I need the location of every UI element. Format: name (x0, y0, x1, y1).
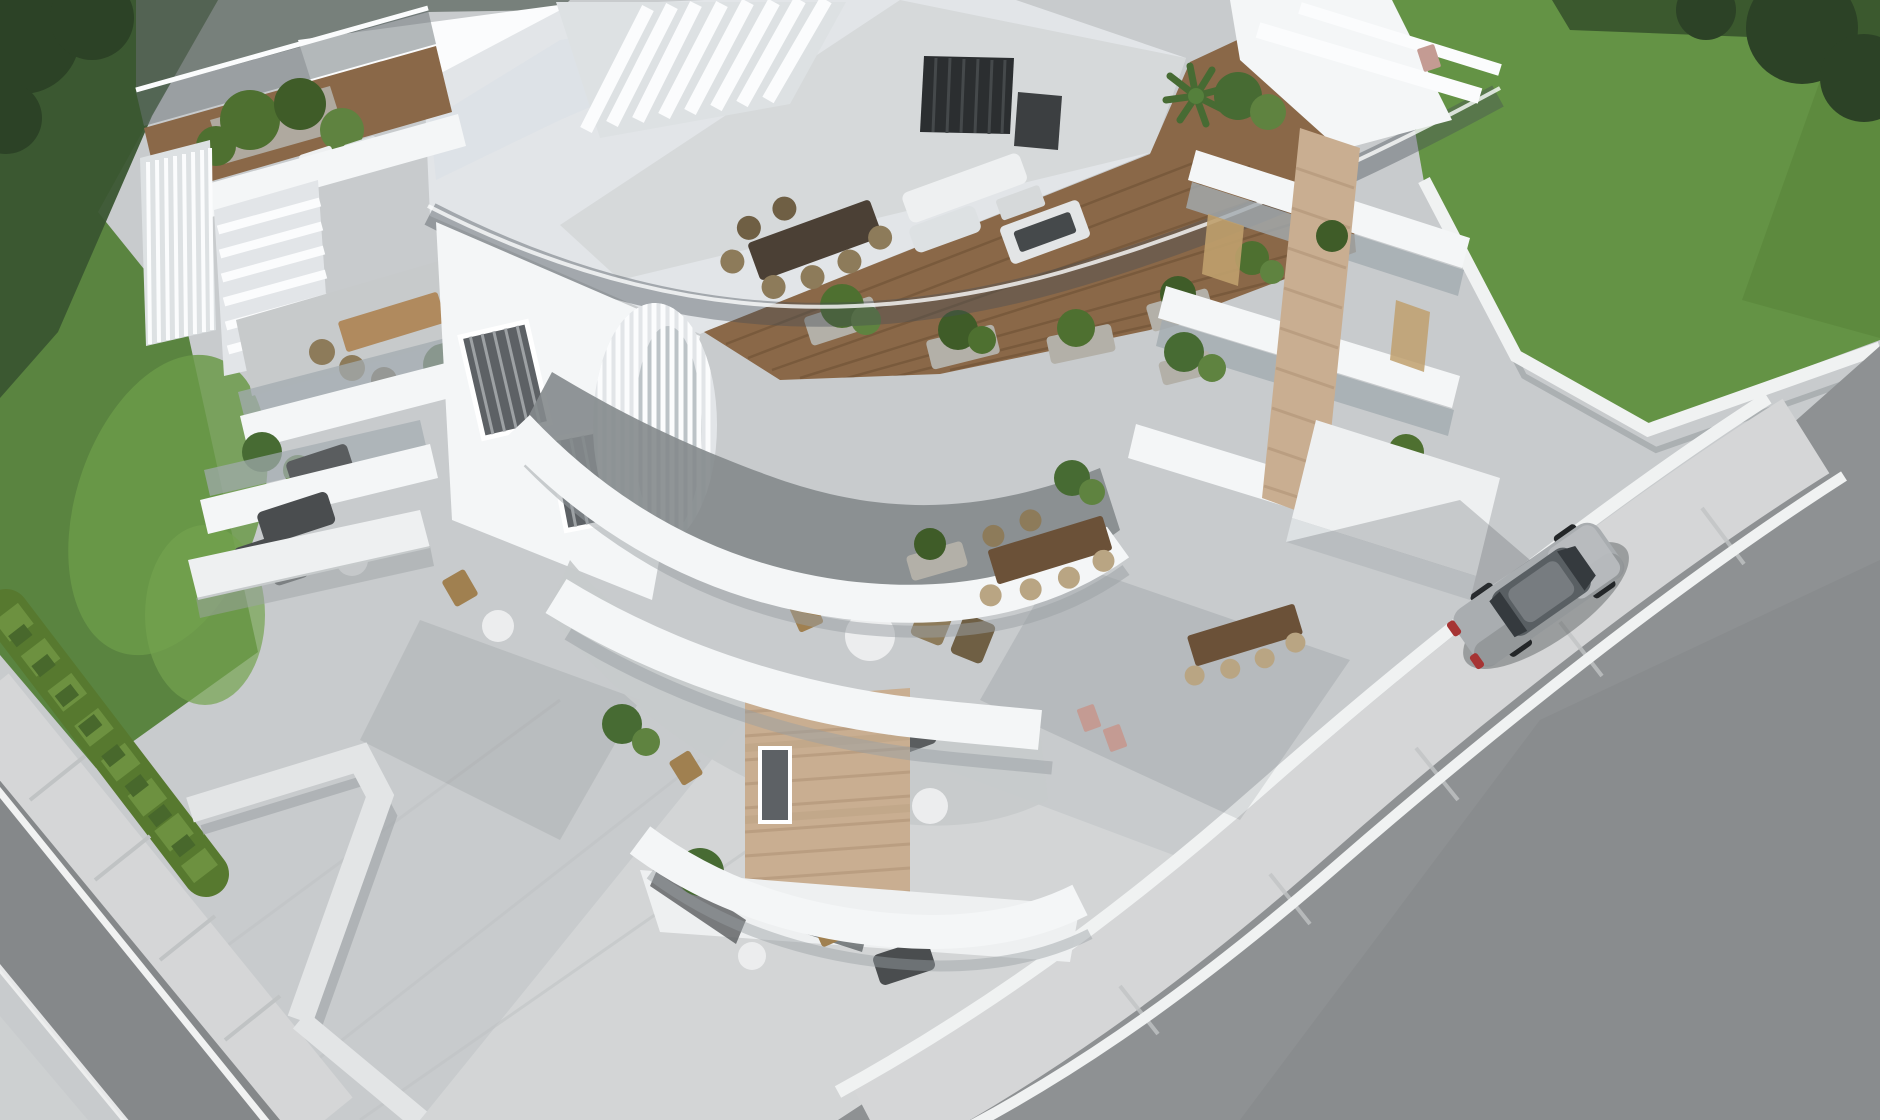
palm-plant (1198, 354, 1226, 382)
shrub (1057, 309, 1095, 347)
architectural-render (0, 0, 1880, 1120)
render-canvas (0, 0, 1880, 1120)
palm-plant (1079, 479, 1105, 505)
louver-panel-2 (1014, 92, 1062, 150)
shrub (914, 528, 946, 560)
palm-crown (1188, 88, 1204, 104)
gold-accent-wall (1202, 214, 1244, 286)
shrub (274, 78, 326, 130)
wicker-chair (309, 339, 335, 365)
palm-plant (1164, 332, 1204, 372)
palm-plant (1316, 220, 1348, 252)
palm-plant (632, 728, 660, 756)
round-white-table (738, 942, 766, 970)
shrub (968, 326, 996, 354)
small-window (760, 748, 790, 822)
palm-plant (1250, 94, 1286, 130)
round-white-table (482, 610, 514, 642)
gold-accent-wall (1390, 300, 1430, 372)
shrub (1260, 260, 1284, 284)
round-white-table (912, 788, 948, 824)
